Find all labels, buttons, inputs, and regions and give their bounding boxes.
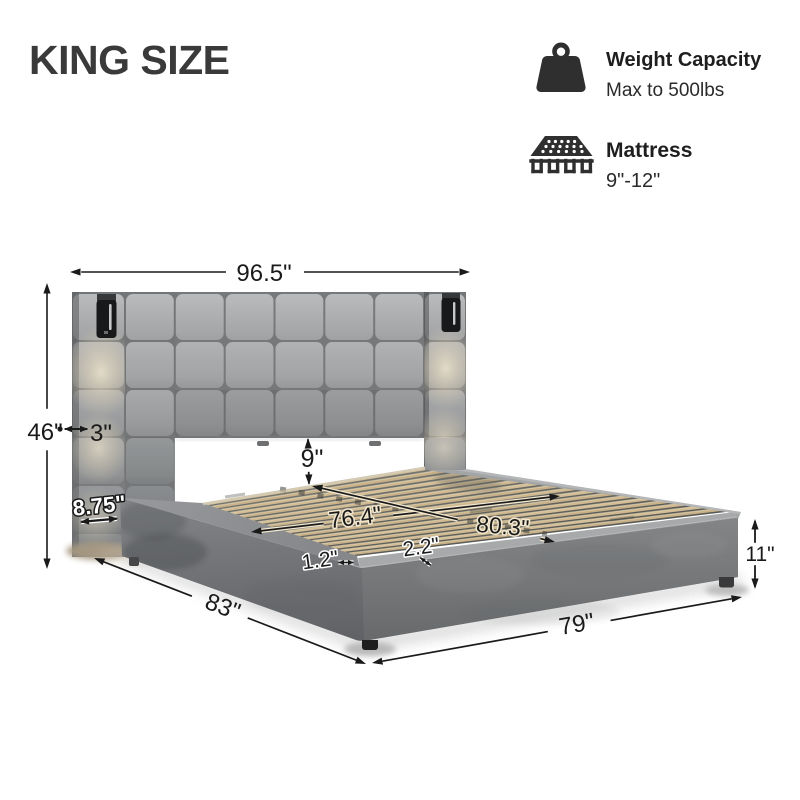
- svg-text:Weight Capacity: Weight Capacity: [606, 49, 762, 71]
- svg-text:9"-12": 9"-12": [606, 170, 660, 192]
- svg-text:46": 46": [27, 419, 62, 446]
- svg-text:KING SIZE: KING SIZE: [29, 37, 230, 83]
- svg-text:11": 11": [745, 543, 774, 566]
- svg-text:9": 9": [301, 445, 324, 473]
- svg-text:80.3": 80.3": [475, 511, 530, 542]
- svg-text:96.5": 96.5": [236, 260, 291, 287]
- svg-text:Max to 500lbs: Max to 500lbs: [606, 80, 724, 101]
- svg-text:Mattress: Mattress: [606, 139, 692, 162]
- svg-text:3": 3": [90, 420, 112, 447]
